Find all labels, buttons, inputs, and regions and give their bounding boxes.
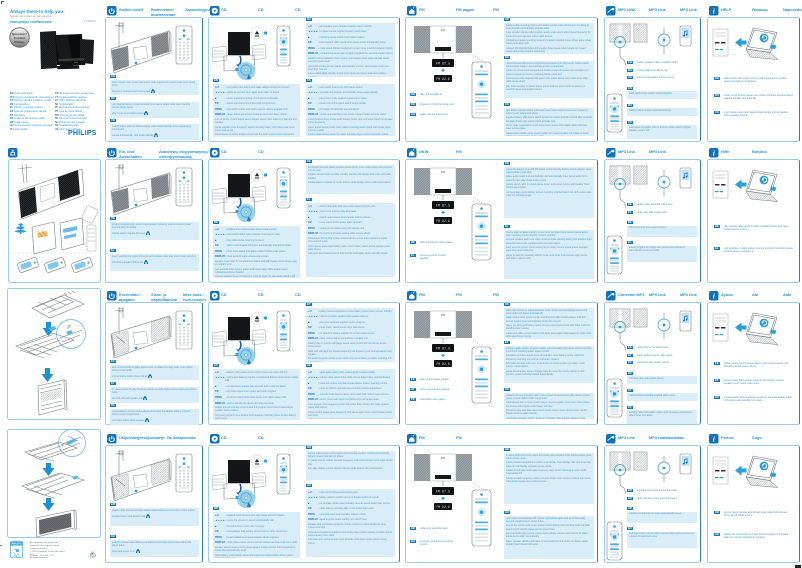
svg-text:FM 87.5: FM 87.5	[436, 348, 450, 352]
svg-text:FSC: FSC	[91, 557, 96, 559]
svg-text:Philips: Philips	[14, 40, 24, 44]
svg-text:FM: FM	[441, 313, 446, 317]
svg-text:FM: FM	[441, 170, 446, 174]
svg-text:FM 92.6: FM 92.6	[436, 219, 449, 223]
svg-text:FM: FM	[441, 28, 446, 32]
svg-text:FM 92.6: FM 92.6	[436, 77, 449, 81]
svg-text:FM 92.6: FM 92.6	[436, 362, 449, 366]
svg-text:FM 87.5: FM 87.5	[436, 205, 450, 209]
svg-text:FM: FM	[441, 456, 446, 460]
svg-text:FM 87.5: FM 87.5	[436, 63, 450, 67]
svg-text:FM 92.6: FM 92.6	[436, 505, 449, 509]
svg-text:FM 87.5: FM 87.5	[436, 491, 450, 495]
svg-text:PHILIPS: PHILIPS	[11, 542, 21, 546]
